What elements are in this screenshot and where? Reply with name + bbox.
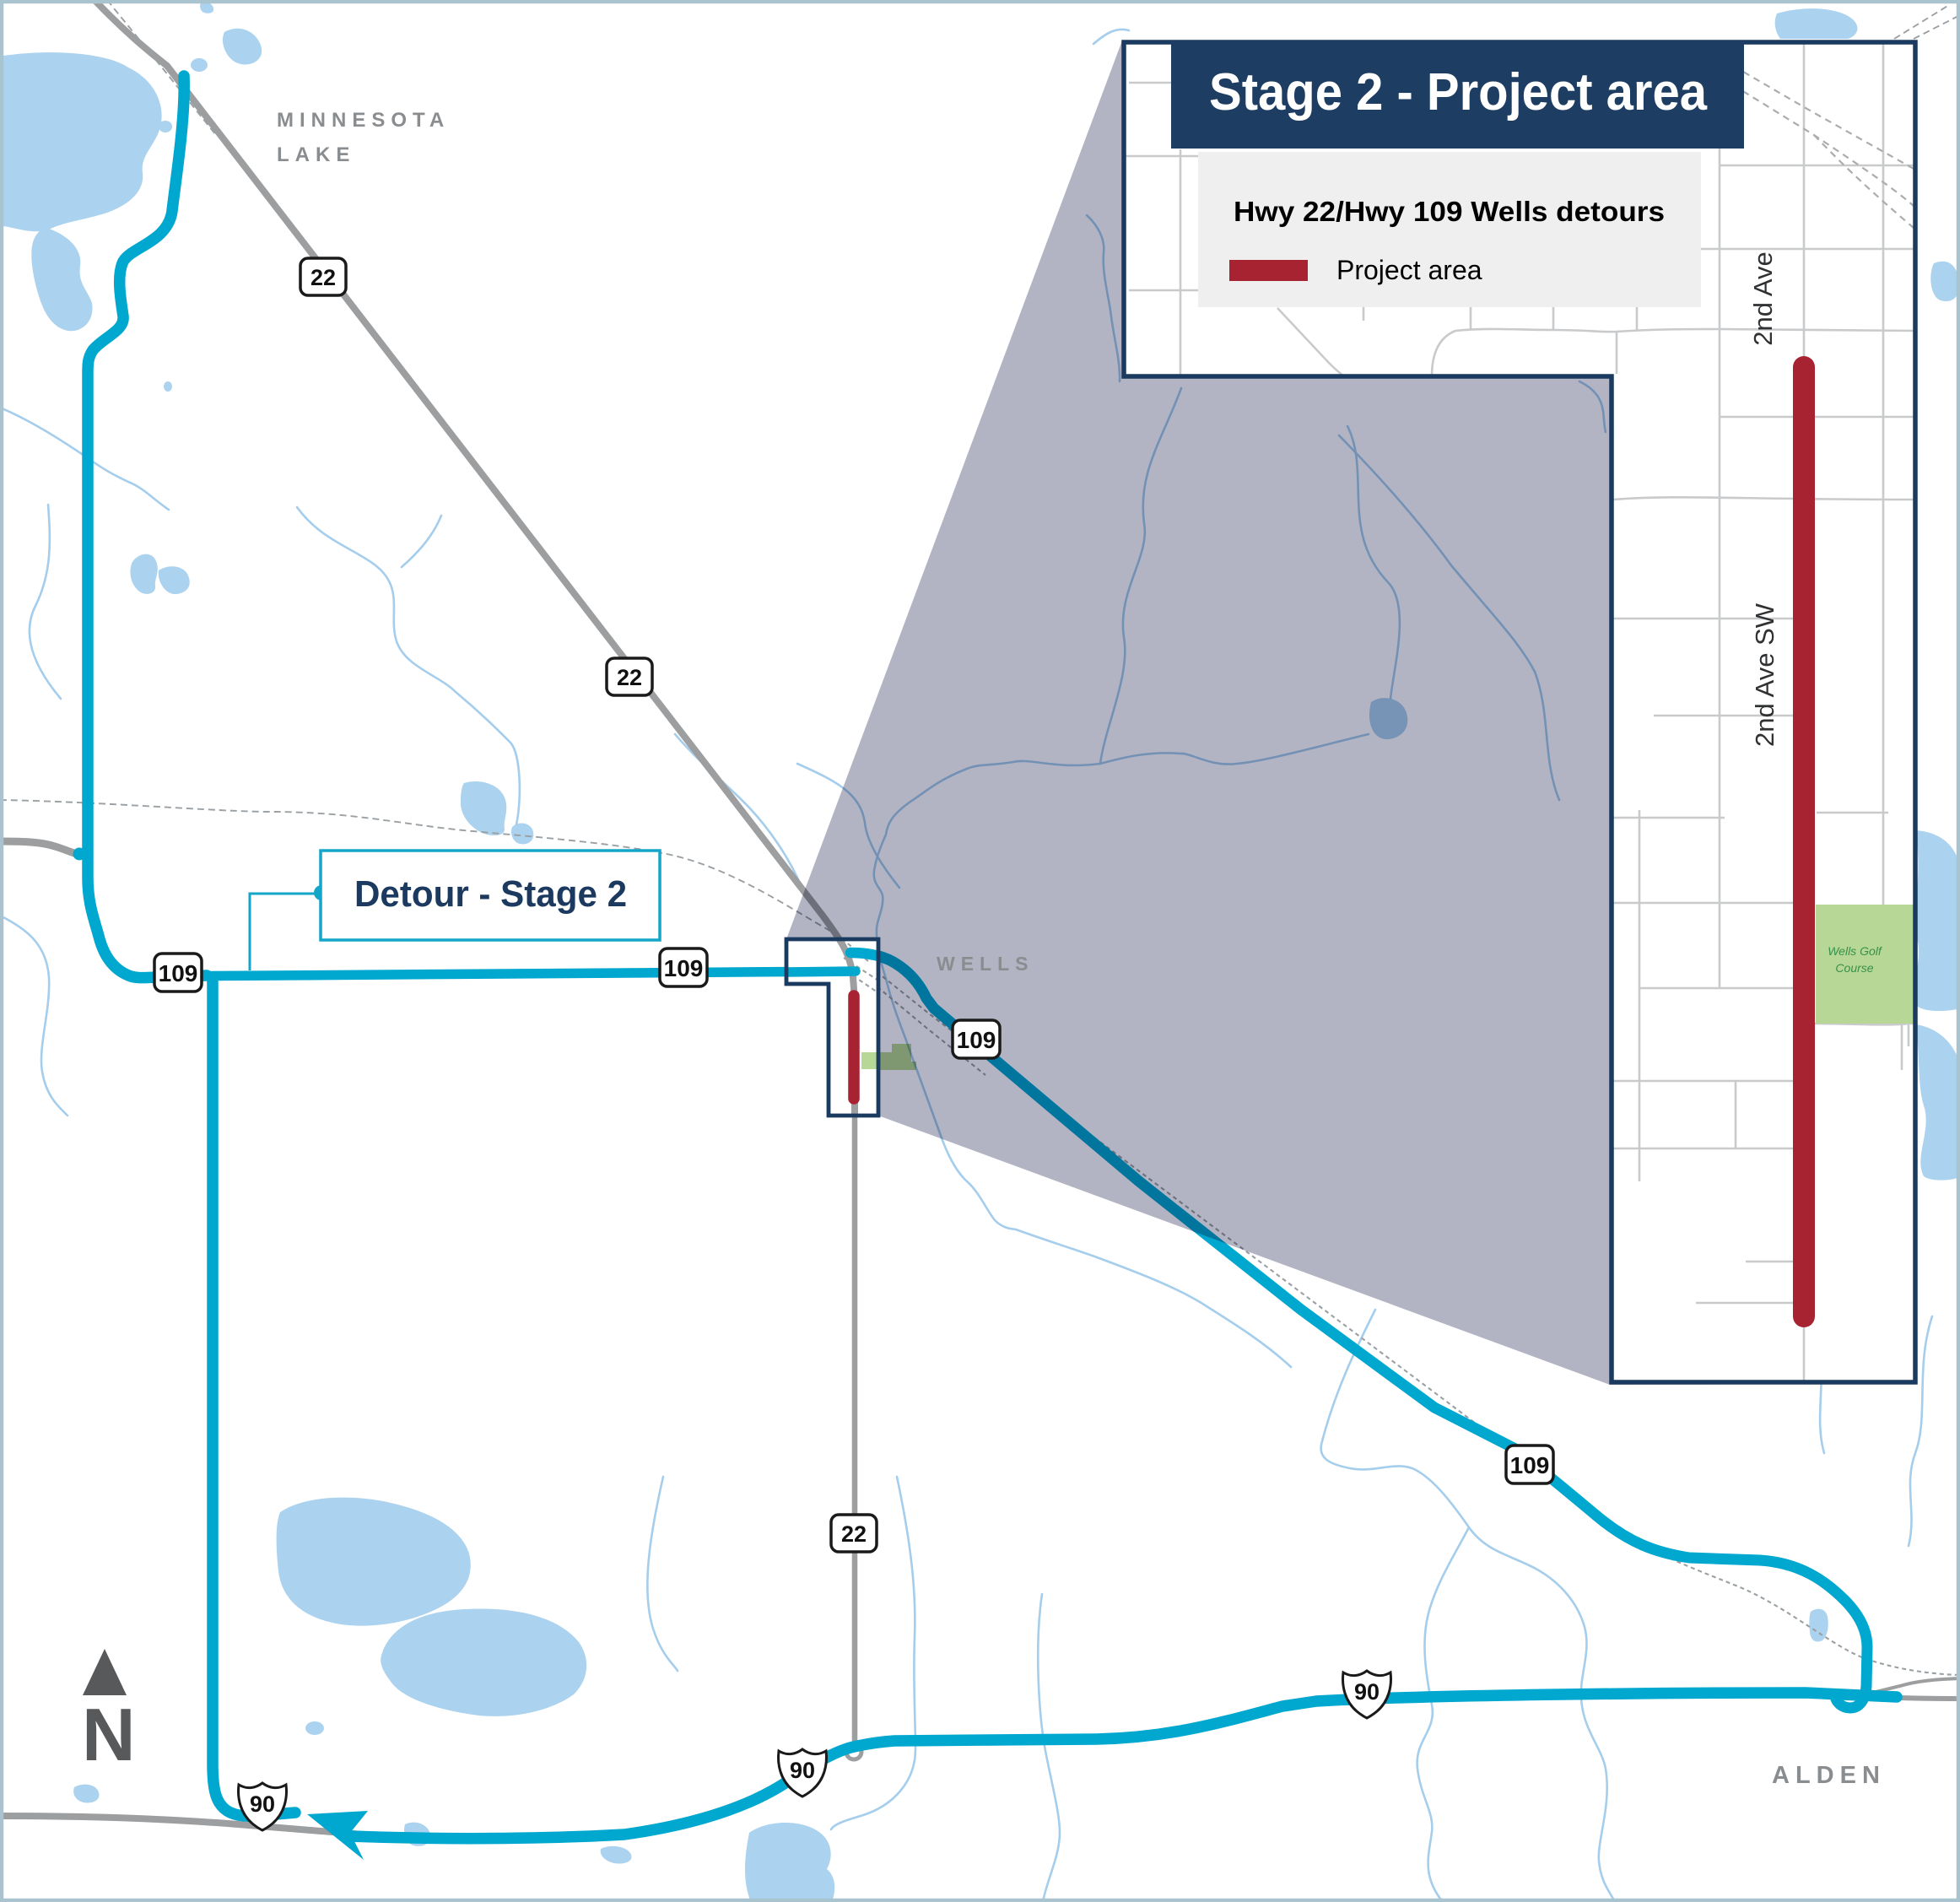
- svg-text:90: 90: [1354, 1679, 1380, 1705]
- svg-text:Wells Golf: Wells Golf: [1828, 944, 1883, 958]
- svg-text:2nd Ave SW: 2nd Ave SW: [1750, 602, 1779, 747]
- svg-text:Project area: Project area: [1336, 255, 1482, 285]
- svg-text:22: 22: [310, 265, 336, 290]
- svg-text:LAKE: LAKE: [277, 143, 355, 166]
- svg-text:109: 109: [664, 955, 704, 981]
- svg-text:N: N: [82, 1693, 136, 1776]
- svg-text:Stage 2 - Project area: Stage 2 - Project area: [1209, 63, 1707, 122]
- svg-text:22: 22: [841, 1521, 867, 1547]
- svg-text:22: 22: [617, 665, 642, 690]
- svg-text:Hwy 22/Hwy 109 Wells detours: Hwy 22/Hwy 109 Wells detours: [1234, 196, 1665, 227]
- svg-text:2nd Ave: 2nd Ave: [1748, 251, 1778, 345]
- svg-text:109: 109: [159, 960, 198, 986]
- svg-text:WELLS: WELLS: [937, 953, 1034, 975]
- svg-text:90: 90: [250, 1791, 275, 1817]
- svg-text:Course: Course: [1835, 961, 1873, 975]
- svg-text:Detour - Stage 2: Detour - Stage 2: [354, 873, 627, 915]
- svg-text:90: 90: [790, 1758, 815, 1783]
- svg-text:109: 109: [957, 1027, 996, 1053]
- svg-text:109: 109: [1510, 1452, 1550, 1478]
- svg-text:ALDEN: ALDEN: [1772, 1762, 1886, 1789]
- svg-text:MINNESOTA: MINNESOTA: [277, 109, 450, 132]
